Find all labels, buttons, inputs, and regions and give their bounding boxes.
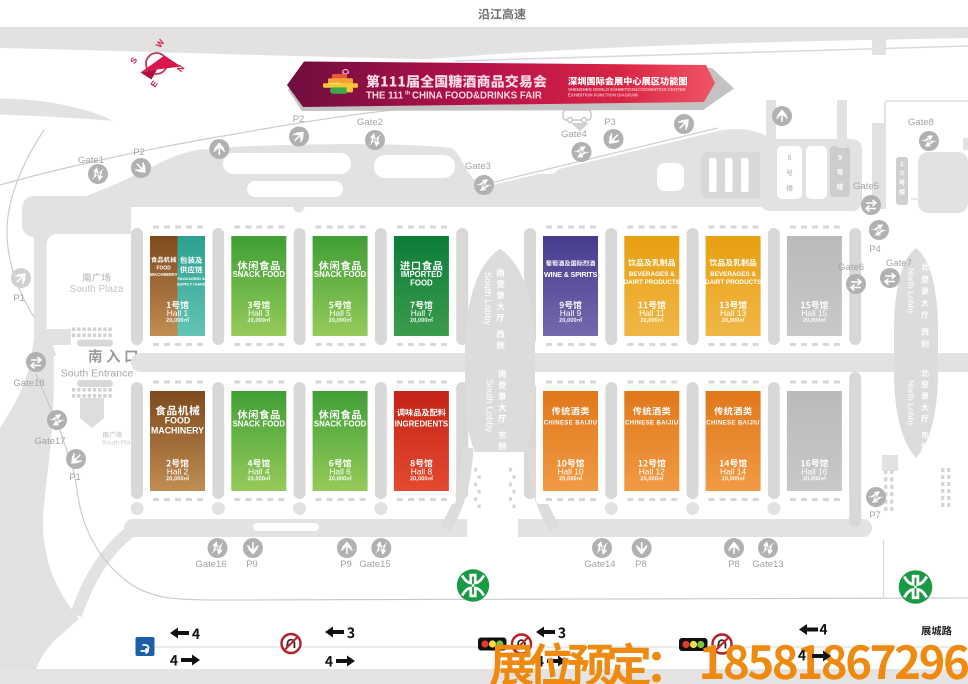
svg-text:South Entrance: South Entrance [61,368,134,380]
svg-text:P7: P7 [869,510,881,521]
svg-text:Hall 4: Hall 4 [248,466,270,476]
svg-text:CHINA FOOD&DRINKS FAIR: CHINA FOOD&DRINKS FAIR [412,91,542,102]
svg-text:Hall 1: Hall 1 [167,308,189,318]
svg-text:FOOD: FOOD [156,266,171,272]
svg-text:FOOD: FOOD [165,416,190,426]
svg-text:EXHIBITION FUNCTION DIAGRAM: EXHIBITION FUNCTION DIAGRAM [568,93,638,98]
svg-text:WINE & SPIRITS: WINE & SPIRITS [544,270,598,279]
svg-text:P8: P8 [728,559,740,570]
svg-text:CHINESE BAIJIU: CHINESE BAIJIU [625,421,679,427]
svg-text:P2: P2 [133,147,145,158]
svg-text:Gate6: Gate6 [838,262,864,273]
svg-text:BEVERAGES &: BEVERAGES & [710,271,756,278]
svg-text:Gate5: Gate5 [853,181,879,192]
svg-text:P1: P1 [13,293,25,304]
svg-text:North Lobby: North Lobby [906,268,916,315]
svg-text:South Lobby: South Lobby [482,272,493,326]
svg-text:P9: P9 [340,559,352,570]
svg-text:Hall 13: Hall 13 [720,308,746,318]
svg-text:Hall 3: Hall 3 [248,308,270,318]
svg-text:Gate14: Gate14 [584,559,615,570]
svg-text:Gate2: Gate2 [357,117,383,128]
svg-text:FOOD: FOOD [410,279,433,288]
svg-text:Hall 7: Hall 7 [411,308,433,318]
svg-text:Hall 16: Hall 16 [801,466,827,476]
svg-text:Gate16: Gate16 [195,559,226,570]
svg-text:SHENZHEN WORLD EXHIBITION&CONV: SHENZHEN WORLD EXHIBITION&CONVENTION CEN… [568,87,686,92]
svg-text:Hall 6: Hall 6 [329,466,351,476]
svg-text:Gate4: Gate4 [561,129,587,140]
svg-text:Hall 14: Hall 14 [720,466,746,476]
svg-text:MACHINERY: MACHINERY [151,426,204,436]
svg-text:North Lobby: North Lobby [906,380,916,427]
svg-text:Hall 2: Hall 2 [167,466,189,476]
svg-text:th: th [405,91,411,97]
svg-text:Gate15: Gate15 [359,559,390,570]
svg-text:Hall 10: Hall 10 [557,466,583,476]
svg-text:SUPPLY CHAIN: SUPPLY CHAIN [177,282,206,287]
svg-text:BEVERAGES &: BEVERAGES & [629,271,675,278]
svg-text:DAIRT PRODUCTS: DAIRT PRODUCTS [624,279,680,286]
svg-text:Gate7: Gate7 [886,258,912,269]
svg-text:P3: P3 [604,117,616,128]
svg-text:Gate3: Gate3 [465,161,491,172]
svg-text:P2: P2 [293,114,305,125]
svg-text:South Lobby: South Lobby [484,379,495,433]
svg-text:Hall 5: Hall 5 [329,308,351,318]
svg-text:THE 111: THE 111 [366,91,404,102]
svg-text:P8: P8 [635,559,647,570]
svg-text:P4: P4 [869,244,881,255]
svg-text:Hall 8: Hall 8 [411,466,433,476]
svg-text:Gate1: Gate1 [78,155,104,166]
svg-text:Hall 15: Hall 15 [801,308,827,318]
svg-text:MACHINERY: MACHINERY [150,272,178,277]
svg-text:P1: P1 [69,472,81,483]
svg-text:SNACK FOOD: SNACK FOOD [233,420,286,429]
svg-text:SNACK FOOD: SNACK FOOD [314,270,367,279]
svg-text:Gate17: Gate17 [34,436,65,447]
svg-text:P9: P9 [246,559,258,570]
svg-text:Hall 11: Hall 11 [639,308,665,318]
svg-text:South Plaza: South Plaza [70,284,124,295]
svg-text:CHINESE BAIJIU: CHINESE BAIJIU [706,421,760,427]
svg-text:Hall 12: Hall 12 [639,466,665,476]
svg-text:Hall 9: Hall 9 [560,308,582,318]
svg-text:Gate13: Gate13 [752,559,783,570]
svg-text:DAIRT PRODUCTS: DAIRT PRODUCTS [705,279,761,286]
svg-text:CHINESE BAIJIU: CHINESE BAIJIU [544,421,598,427]
svg-text:SNACK FOOD: SNACK FOOD [233,270,286,279]
svg-text:INGREDIENTS: INGREDIENTS [395,420,448,429]
svg-text:Gate18: Gate18 [13,378,44,389]
svg-text:Gate8: Gate8 [908,117,934,128]
svg-text:PACKAGING &: PACKAGING & [178,276,206,281]
svg-text:SNACK FOOD: SNACK FOOD [314,420,367,429]
